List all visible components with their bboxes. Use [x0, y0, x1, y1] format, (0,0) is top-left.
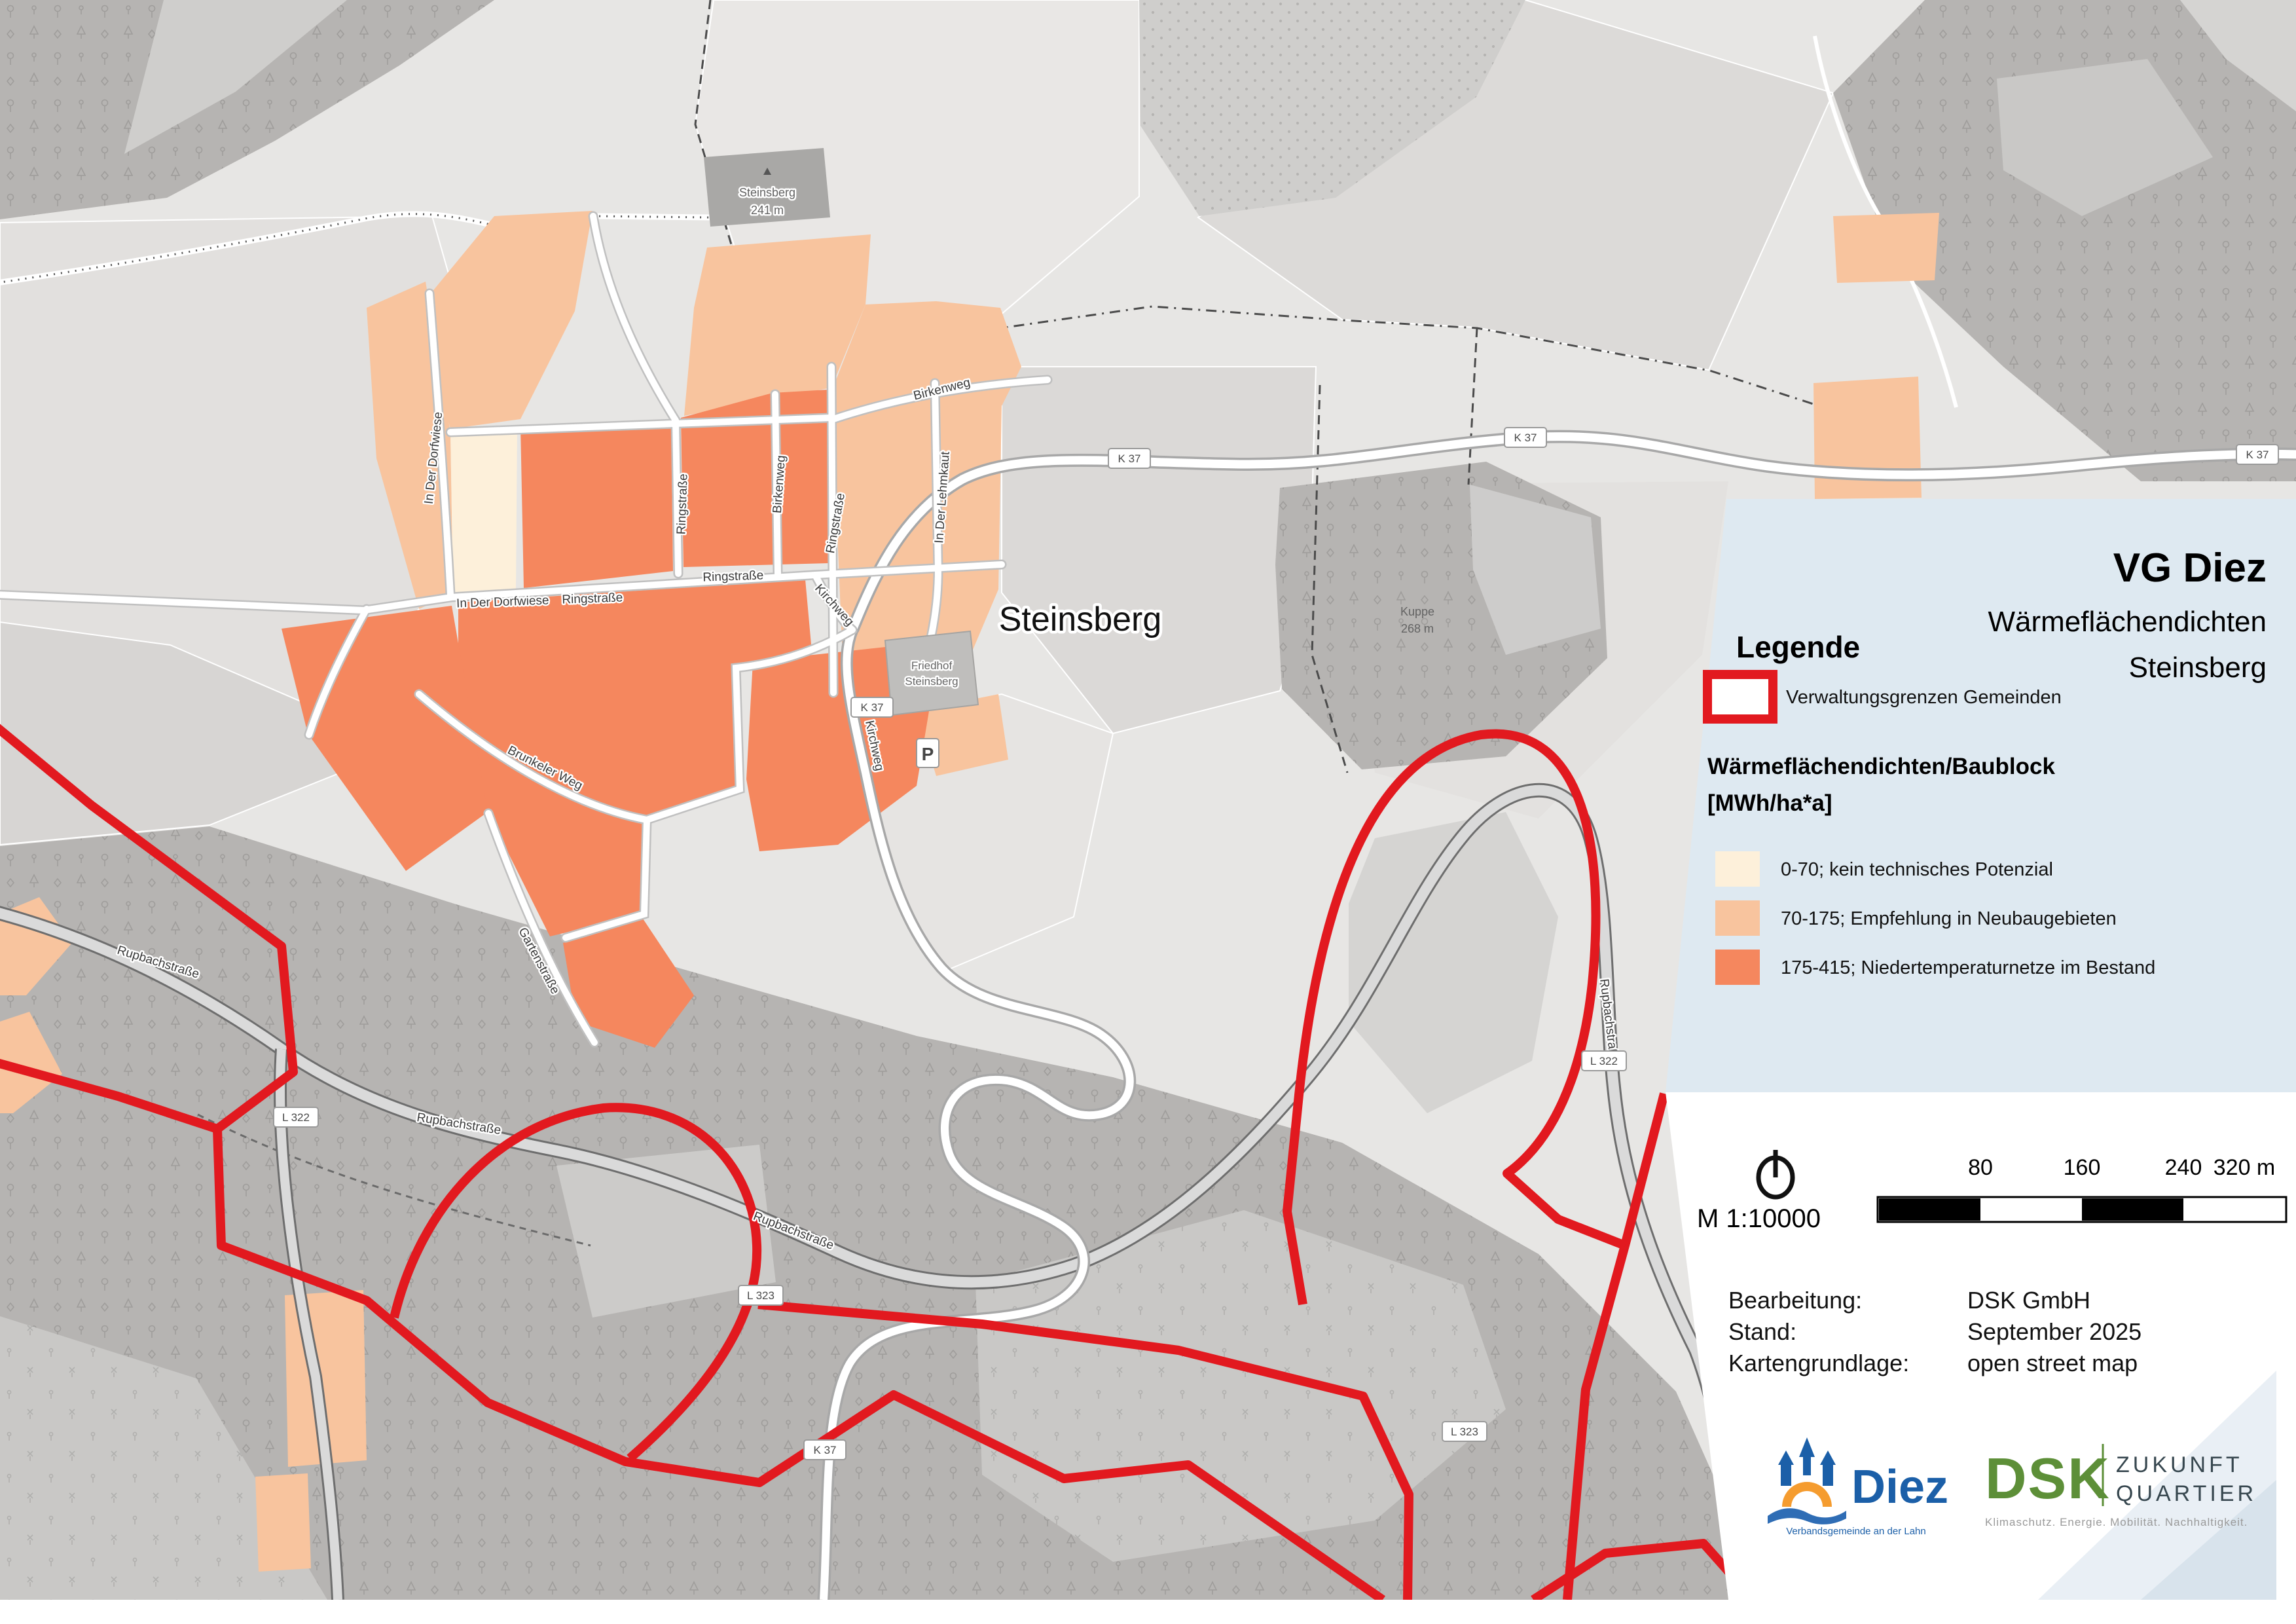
- road-shield: K 37: [1514, 432, 1537, 444]
- legend-class-label: 70-175; Empfehlung in Neubaugebieten: [1781, 908, 2117, 929]
- cemetery-label-1: Friedhof: [911, 659, 953, 672]
- road-shield: K 37: [1118, 452, 1141, 465]
- road-shield: K 37: [814, 1444, 837, 1456]
- road-shield: K 37: [2246, 449, 2269, 461]
- dsk-logo-text: DSK: [1985, 1446, 2111, 1511]
- credit-value: September 2025: [1967, 1318, 2141, 1345]
- legend-swatch: [1715, 900, 1760, 936]
- legend-swatch: [1715, 851, 1760, 887]
- cemetery-label-2: Steinsberg: [905, 675, 958, 688]
- dsk-logo: DSK ZUKUNFT QUARTIER Klimaschutz. Energi…: [1985, 1444, 2257, 1528]
- hill-label: Kuppe: [1400, 605, 1434, 618]
- street-label: Ringstraße: [562, 591, 623, 606]
- scale-tick: 80: [1968, 1155, 1993, 1180]
- map-canvas: Steinsberg 241 m Kuppe 268 m Friedhof St…: [0, 0, 2296, 1624]
- summit-elevation: 241 m: [751, 204, 784, 217]
- scalebar-segment: [2082, 1198, 2183, 1221]
- dsk-claim-line2: QUARTIER: [2116, 1481, 2257, 1506]
- hill-elevation: 268 m: [1401, 622, 1434, 635]
- road-shield: L 322: [282, 1111, 310, 1124]
- road-shield: L 322: [1590, 1055, 1618, 1067]
- scale-tick: 240: [2165, 1155, 2202, 1180]
- credit-label: Kartengrundlage:: [1728, 1350, 1909, 1376]
- scale-text: M 1:10000: [1697, 1204, 1821, 1233]
- street-label: Ringstraße: [674, 473, 690, 535]
- dsk-claim-line1: ZUKUNFT: [2116, 1452, 2243, 1477]
- credit-value: DSK GmbH: [1967, 1287, 2090, 1314]
- scalebar-segment: [1879, 1198, 1980, 1221]
- dsk-tagline: Klimaschutz. Energie. Mobilität. Nachhal…: [1985, 1516, 2248, 1528]
- map-area-name: Steinsberg: [2129, 652, 2267, 684]
- heat-blocks-cream: [450, 427, 517, 593]
- legend-class-label: 0-70; kein technisches Potenzial: [1781, 859, 2053, 880]
- street-label: Ringstraße: [702, 568, 764, 584]
- credit-value: open street map: [1967, 1350, 2138, 1376]
- map-sheet: Steinsberg 241 m Kuppe 268 m Friedhof St…: [0, 0, 2296, 1624]
- legend-class-label: 175-415; Niedertemperaturnetze im Bestan…: [1781, 957, 2155, 978]
- scale-tick: 320 m: [2214, 1155, 2276, 1180]
- road-shield: K 37: [861, 701, 884, 714]
- diez-logo-text: Diez: [1851, 1461, 1948, 1513]
- parking-label: P: [922, 744, 934, 764]
- section-title-line2: [MWh/ha*a]: [1707, 790, 1832, 816]
- section-title-line1: Wärmeflächendichten/Baublock: [1707, 754, 2055, 779]
- boundary-label: Verwaltungsgrenzen Gemeinden: [1786, 687, 2062, 708]
- road-shield: L 323: [1451, 1426, 1478, 1438]
- summit-label: Steinsberg: [739, 186, 795, 199]
- town-label: Steinsberg: [999, 600, 1162, 638]
- legend-swatch: [1715, 950, 1760, 985]
- legend-heading: Legende: [1736, 630, 1860, 664]
- boundary-symbol: [1707, 674, 1773, 719]
- map-subtitle: Wärmeflächendichten: [1988, 606, 2267, 638]
- credit-label: Stand:: [1728, 1318, 1796, 1345]
- scale-tick: 160: [2064, 1155, 2101, 1180]
- credit-label: Bearbeitung:: [1728, 1287, 1862, 1314]
- road-shield: L 323: [747, 1289, 774, 1302]
- map-title: VG Diez: [2113, 545, 2267, 591]
- diez-logo-tagline: Verbandsgemeinde an der Lahn: [1786, 1526, 1926, 1537]
